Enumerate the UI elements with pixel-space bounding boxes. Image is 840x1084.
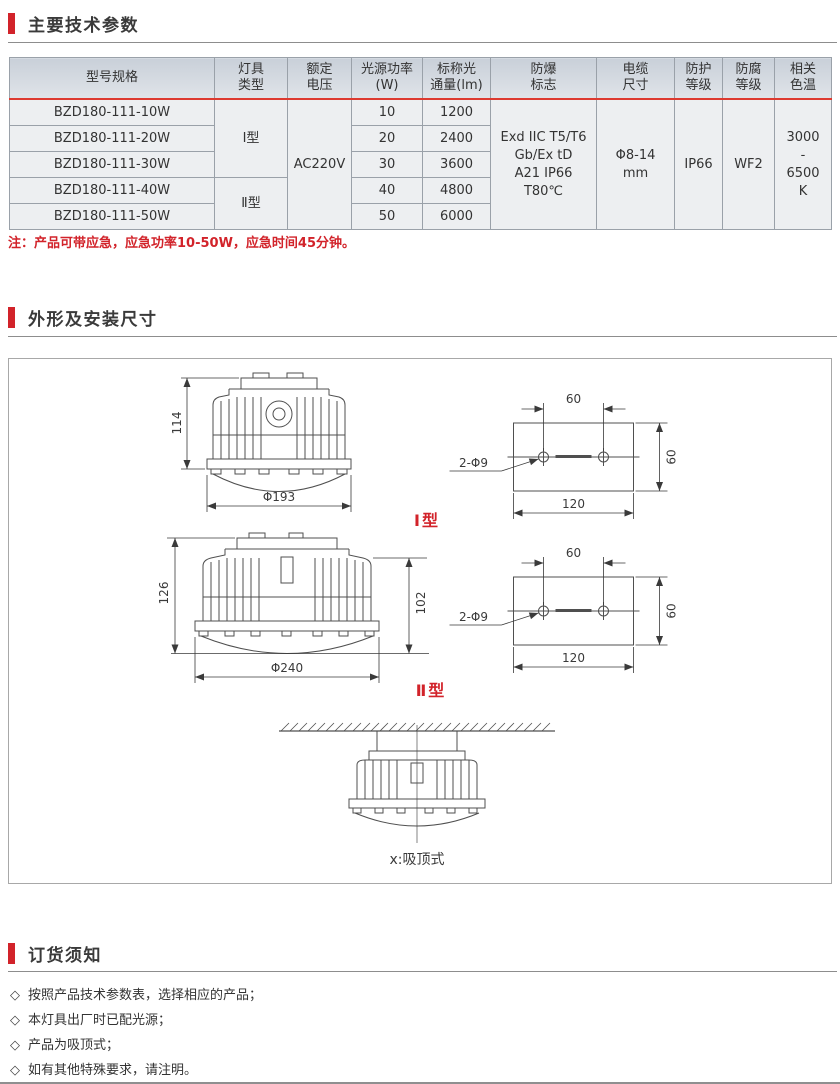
divider	[8, 42, 837, 43]
cell-model: BZD180-111-40W	[10, 178, 215, 204]
datasheet-page: 主要技术参数 型号规格 灯具 类型 额定 电压 光源功率 (W) 标称光 通量(…	[0, 0, 840, 1084]
header-ex-mark: 防爆 标志	[491, 58, 597, 100]
cell-protection: IP66	[675, 99, 723, 230]
ordering-note-text: 如有其他特殊要求，请注明。	[28, 1058, 197, 1083]
section-ordering-header: 订货须知	[8, 941, 102, 966]
cell-power: 50	[352, 204, 423, 230]
cell-cct: 3000 - 6500 K	[775, 99, 832, 230]
header-model: 型号规格	[10, 58, 215, 100]
dim-hole-spacing-60: 60	[566, 392, 581, 406]
list-item: ◇ 本灯具出厂时已配光源；	[10, 1008, 262, 1033]
section-marker-icon	[8, 943, 15, 964]
spec-table: 型号规格 灯具 类型 额定 电压 光源功率 (W) 标称光 通量(lm) 防爆 …	[9, 57, 832, 230]
ordering-note-text: 按照产品技术参数表，选择相应的产品；	[28, 983, 262, 1008]
header-cable: 电缆 尺寸	[597, 58, 675, 100]
cell-flux: 4800	[423, 178, 491, 204]
cell-model: BZD180-111-30W	[10, 152, 215, 178]
section-marker-icon	[8, 13, 15, 34]
emergency-note: 注：产品可带应急，应急功率10-50W，应急时间45分钟。	[8, 232, 355, 251]
section-dimensions-header: 外形及安装尺寸	[8, 305, 158, 330]
section-marker-icon	[8, 307, 15, 328]
header-flux: 标称光 通量(lm)	[423, 58, 491, 100]
cell-model: BZD180-111-10W	[10, 99, 215, 126]
cell-flux: 1200	[423, 99, 491, 126]
diamond-bullet-icon: ◇	[10, 983, 20, 1008]
dim-plate-width-120: 120	[562, 651, 585, 665]
dim-height-114: 114	[170, 412, 184, 435]
ceiling-caption: x:吸顶式	[267, 849, 567, 869]
section-title: 主要技术参数	[28, 11, 139, 36]
cell-model: BZD180-111-20W	[10, 126, 215, 152]
divider	[8, 336, 837, 337]
holes-label: 2-Φ9	[459, 610, 488, 624]
section-title: 订货须知	[28, 941, 102, 966]
cell-model: BZD180-111-50W	[10, 204, 215, 230]
cell-power: 20	[352, 126, 423, 152]
header-power: 光源功率 (W)	[352, 58, 423, 100]
list-item: ◇ 按照产品技术参数表，选择相应的产品；	[10, 983, 262, 1008]
ordering-note-text: 产品为吸顶式；	[28, 1033, 119, 1058]
lamp-type2-drawing: 126 102 Φ240	[137, 531, 437, 696]
drawings-panel: 114 Φ193	[8, 358, 832, 884]
lamp-type1-drawing: 114 Φ193	[149, 371, 409, 521]
cell-voltage: AC220V	[288, 99, 352, 230]
header-voltage: 额定 电压	[288, 58, 352, 100]
cell-type-2: Ⅱ型	[215, 178, 288, 230]
cell-power: 30	[352, 152, 423, 178]
section-title: 外形及安装尺寸	[28, 305, 158, 330]
dim-hole-spacing-60: 60	[566, 546, 581, 560]
cell-anticorrosion: WF2	[723, 99, 775, 230]
dim-plate-height-60: 60	[665, 449, 679, 464]
dim-diameter-240: Φ240	[271, 661, 303, 675]
dim-plate-width-120: 120	[562, 497, 585, 511]
ceiling-mount-drawing	[267, 711, 567, 851]
ordering-notes-list: ◇ 按照产品技术参数表，选择相应的产品； ◇ 本灯具出厂时已配光源； ◇ 产品为…	[10, 983, 262, 1083]
list-item: ◇ 如有其他特殊要求，请注明。	[10, 1058, 262, 1083]
dim-diameter-193: Φ193	[263, 490, 295, 504]
header-protection: 防护 等级	[675, 58, 723, 100]
diamond-bullet-icon: ◇	[10, 1008, 20, 1033]
diamond-bullet-icon: ◇	[10, 1058, 20, 1083]
table-row: BZD180-111-10W Ⅰ型 AC220V 10 1200 Exd IIC…	[10, 99, 832, 126]
cell-power: 40	[352, 178, 423, 204]
mounting-plate1-drawing: 60 60 120 2-Φ9	[441, 375, 686, 525]
list-item: ◇ 产品为吸顶式；	[10, 1033, 262, 1058]
header-anticorrosion: 防腐 等级	[723, 58, 775, 100]
section-tech-params-header: 主要技术参数	[8, 11, 139, 36]
ordering-note-text: 本灯具出厂时已配光源；	[28, 1008, 171, 1033]
type2-label: Ⅱ型	[381, 677, 481, 701]
dim-plate-height-60: 60	[665, 603, 679, 618]
diamond-bullet-icon: ◇	[10, 1033, 20, 1058]
holes-label: 2-Φ9	[459, 456, 488, 470]
cell-flux: 2400	[423, 126, 491, 152]
table-header-row: 型号规格 灯具 类型 额定 电压 光源功率 (W) 标称光 通量(lm) 防爆 …	[10, 58, 832, 100]
header-lamp-type: 灯具 类型	[215, 58, 288, 100]
dim-body-height-102: 102	[414, 592, 428, 615]
cell-type-1: Ⅰ型	[215, 99, 288, 178]
cell-cable: Φ8-14 mm	[597, 99, 675, 230]
divider	[8, 971, 837, 972]
cell-flux: 6000	[423, 204, 491, 230]
cell-flux: 3600	[423, 152, 491, 178]
cell-power: 10	[352, 99, 423, 126]
mounting-plate2-drawing: 60 60 120 2-Φ9	[441, 529, 686, 679]
cell-ex-mark: Exd IIC T5/T6 Gb/Ex tD A21 IP66 T80℃	[491, 99, 597, 230]
type1-label: Ⅰ型	[377, 507, 477, 531]
dim-height-126: 126	[157, 582, 171, 605]
header-cct: 相关 色温	[775, 58, 832, 100]
